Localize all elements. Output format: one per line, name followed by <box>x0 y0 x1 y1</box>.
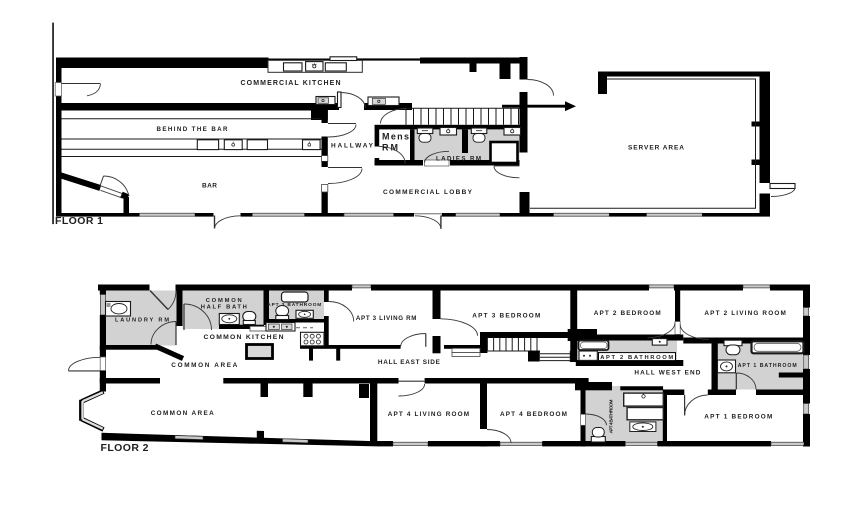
svg-text:Mens: Mens <box>382 132 409 142</box>
svg-text:COMMON AREA: COMMON AREA <box>171 362 237 369</box>
svg-text:BAR: BAR <box>202 182 217 189</box>
svg-text:APT 4 LIVING ROOM: APT 4 LIVING ROOM <box>388 411 469 418</box>
svg-text:APT 2 LIVING ROOM: APT 2 LIVING ROOM <box>704 310 785 317</box>
svg-text:BEHIND THE BAR: BEHIND THE BAR <box>157 126 229 133</box>
svg-text:APT 3 LIVING RM: APT 3 LIVING RM <box>356 315 417 322</box>
svg-text:APT 1 BATHROOM: APT 1 BATHROOM <box>738 363 797 369</box>
svg-text:APT 3 BATHROOM: APT 3 BATHROOM <box>267 302 321 308</box>
svg-text:COMMERCIAL LOBBY: COMMERCIAL LOBBY <box>383 189 473 196</box>
svg-text:APT 4 BATHROOM: APT 4 BATHROOM <box>609 400 615 434</box>
svg-text:RM: RM <box>382 143 398 153</box>
svg-text:FLOOR 2: FLOOR 2 <box>101 442 149 454</box>
svg-text:COMMON AREA: COMMON AREA <box>151 410 214 417</box>
svg-text:SERVER AREA: SERVER AREA <box>628 145 684 152</box>
svg-text:LADIES RM: LADIES RM <box>436 155 481 162</box>
svg-text:HALF BATH: HALF BATH <box>201 304 247 310</box>
svg-text:COMMERCIAL KITCHEN: COMMERCIAL KITCHEN <box>241 80 341 87</box>
svg-text:FLOOR 1: FLOOR 1 <box>55 215 103 227</box>
svg-text:HALL WEST END: HALL WEST END <box>634 369 700 376</box>
svg-text:HALL EAST SIDE: HALL EAST SIDE <box>378 359 441 366</box>
svg-text:APT 2 BATHROOM: APT 2 BATHROOM <box>600 355 673 361</box>
